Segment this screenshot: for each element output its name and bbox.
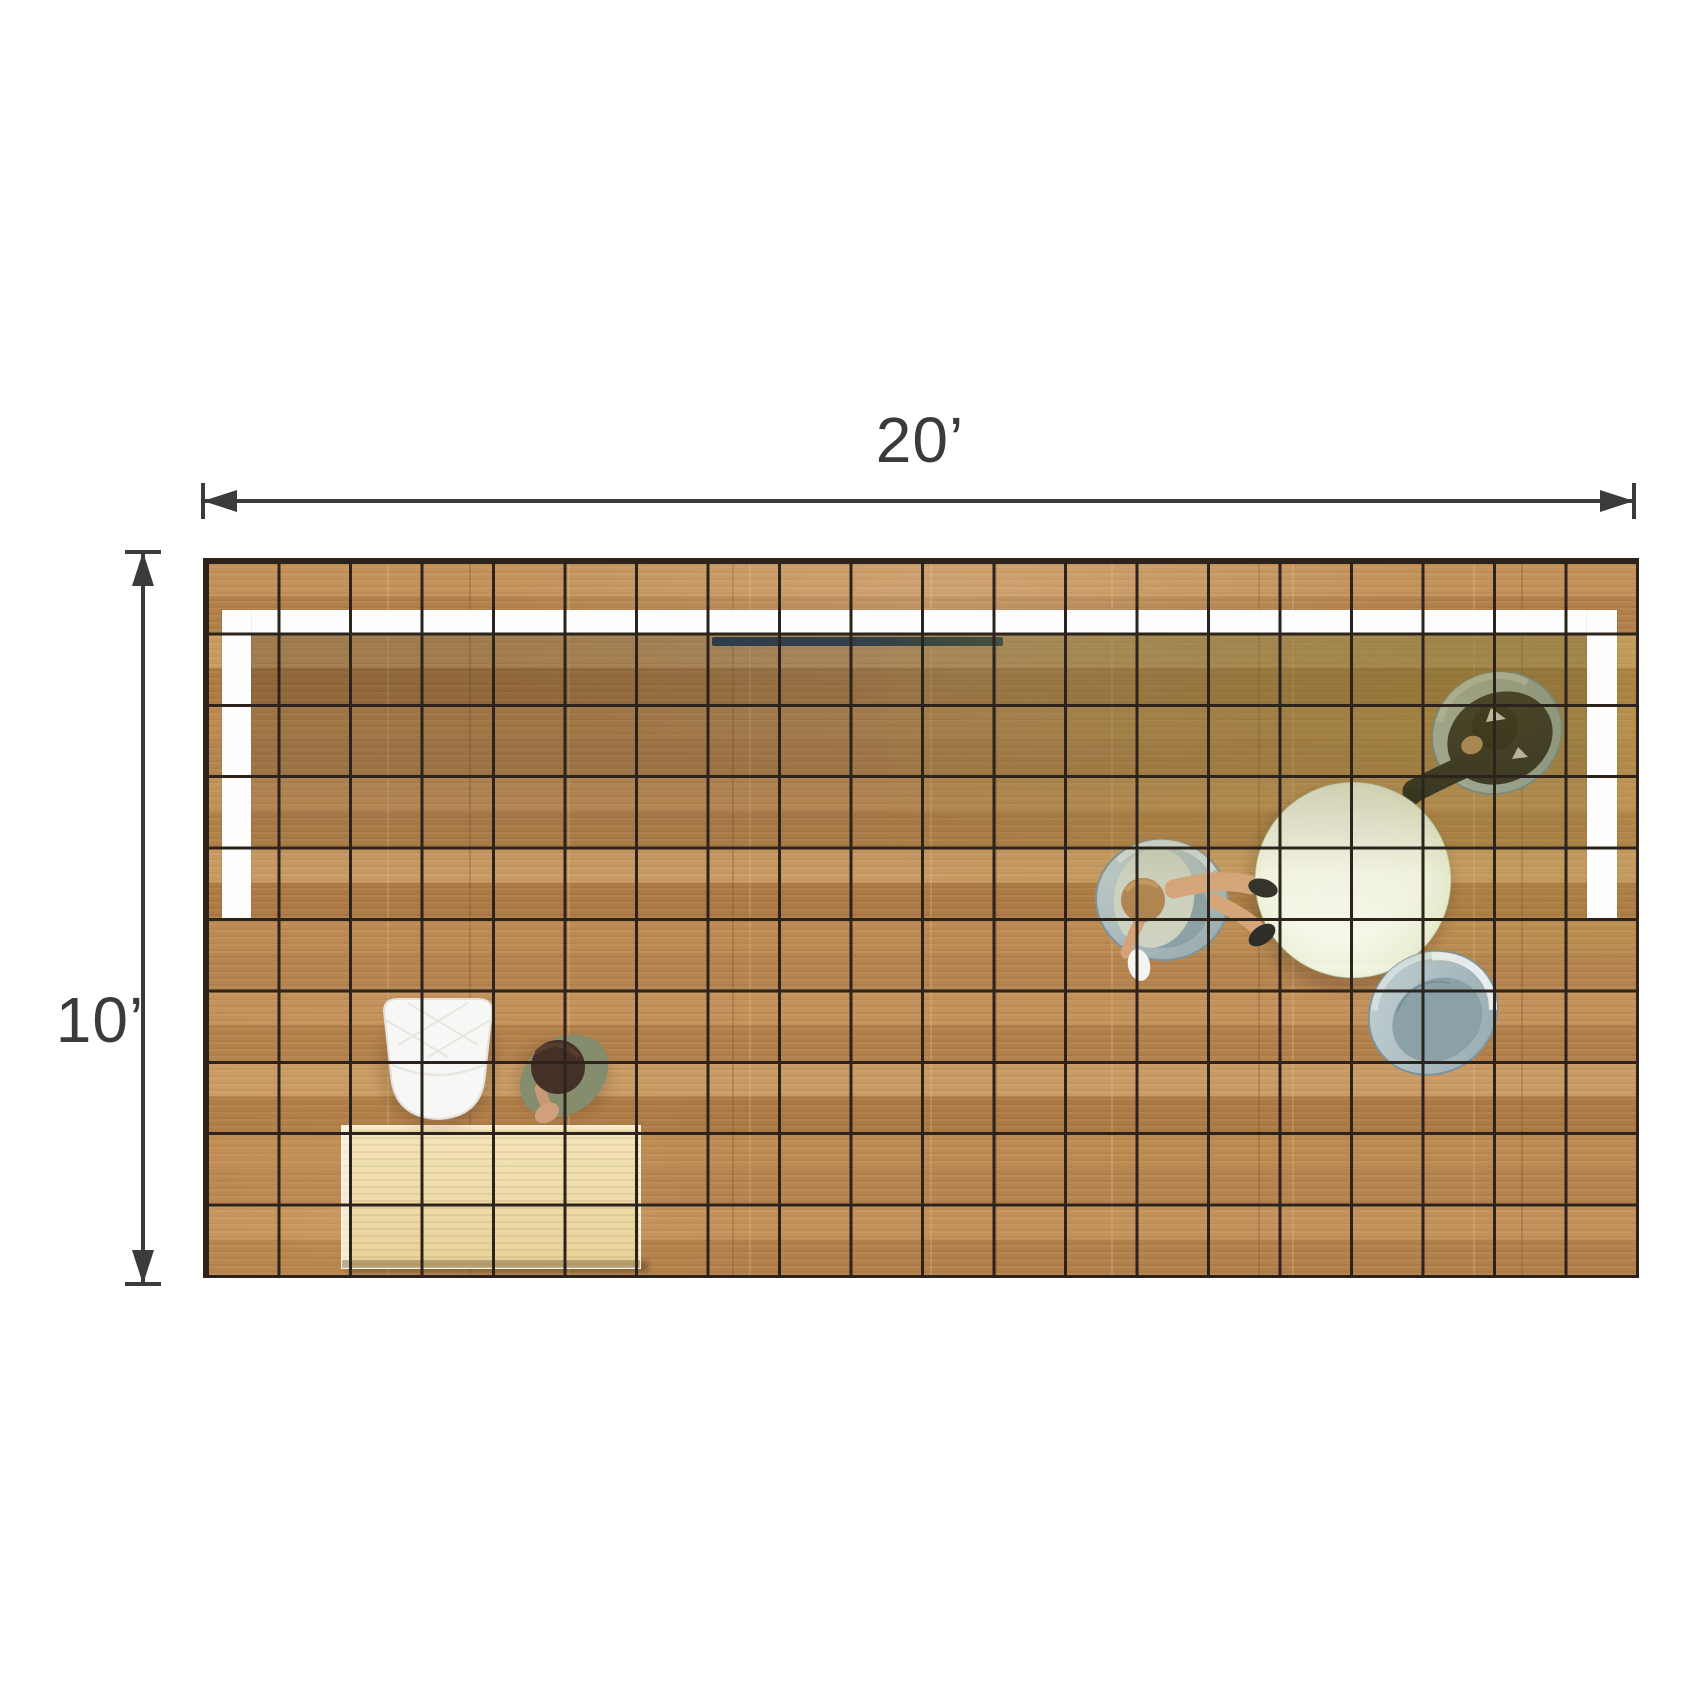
depth-dimension-arrow bbox=[123, 542, 163, 1294]
booth-floor bbox=[203, 558, 1639, 1278]
grid-overlay bbox=[206, 561, 1636, 1275]
width-dimension-arrow bbox=[193, 481, 1643, 521]
floor-plan-canvas: 20’ 10’ bbox=[0, 0, 1702, 1701]
width-dimension-label: 20’ bbox=[845, 408, 995, 472]
